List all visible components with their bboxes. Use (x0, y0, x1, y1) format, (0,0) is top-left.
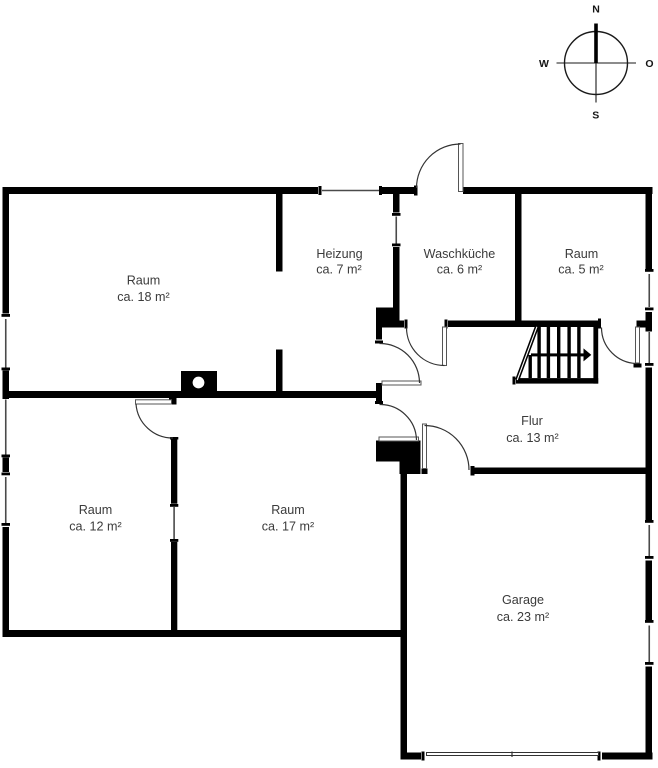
svg-text:ca. 6 m²: ca. 6 m² (437, 263, 483, 277)
svg-text:Flur: Flur (521, 414, 543, 428)
svg-text:ca. 23 m²: ca. 23 m² (497, 610, 550, 624)
svg-text:Garage: Garage (502, 593, 544, 607)
svg-text:ca. 17 m²: ca. 17 m² (262, 520, 315, 534)
svg-text:Raum: Raum (79, 503, 113, 517)
svg-text:N: N (592, 4, 600, 16)
svg-text:Waschküche: Waschküche (424, 247, 496, 261)
svg-text:W: W (539, 58, 549, 70)
svg-text:Raum: Raum (271, 503, 305, 517)
svg-text:ca. 13 m²: ca. 13 m² (506, 431, 559, 445)
svg-text:ca. 12 m²: ca. 12 m² (69, 520, 122, 534)
svg-text:S: S (592, 110, 599, 122)
svg-text:ca. 5 m²: ca. 5 m² (558, 263, 604, 277)
svg-text:O: O (645, 58, 653, 70)
svg-text:ca. 18 m²: ca. 18 m² (117, 290, 170, 304)
svg-text:Heizung: Heizung (316, 247, 362, 261)
svg-text:ca. 7 m²: ca. 7 m² (316, 263, 362, 277)
svg-text:Raum: Raum (565, 247, 599, 261)
svg-text:Raum: Raum (127, 274, 161, 288)
